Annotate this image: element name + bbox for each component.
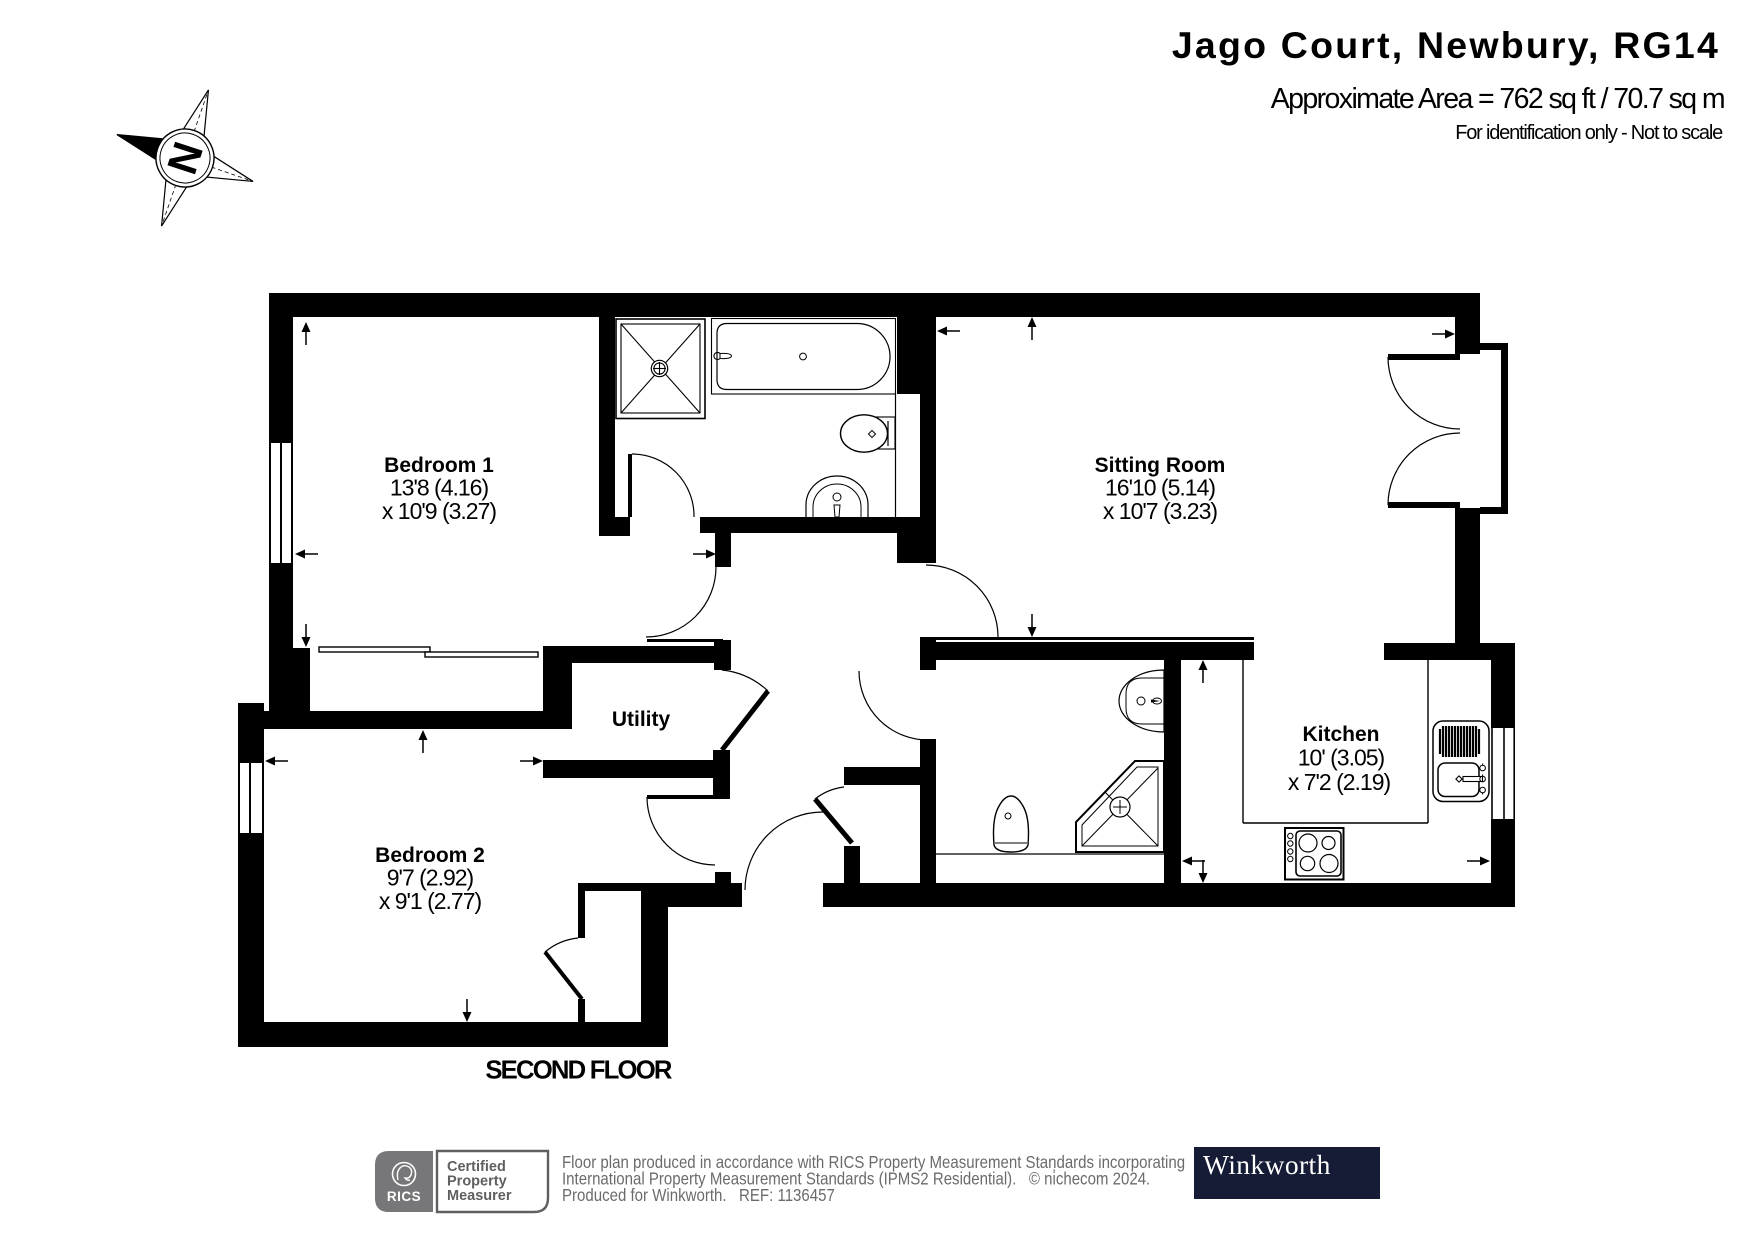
svg-text:x 9'1 (2.77): x 9'1 (2.77) [379, 888, 482, 914]
svg-text:13'8 (4.16): 13'8 (4.16) [390, 475, 489, 501]
svg-text:Winkworth: Winkworth [1203, 1149, 1331, 1180]
svg-text:9'7 (2.92): 9'7 (2.92) [387, 865, 474, 891]
svg-text:x 10'9 (3.27): x 10'9 (3.27) [382, 498, 496, 524]
svg-text:x 7'2 (2.19): x 7'2 (2.19) [1288, 769, 1391, 795]
svg-text:10' (3.05): 10' (3.05) [1298, 745, 1385, 771]
svg-text:x 10'7 (3.23): x 10'7 (3.23) [1103, 498, 1217, 524]
svg-text:16'10 (5.14): 16'10 (5.14) [1105, 475, 1215, 501]
svg-text:RICS: RICS [387, 1189, 421, 1204]
svg-text:Jago Court, Newbury, RG14: Jago Court, Newbury, RG14 [1172, 24, 1720, 66]
svg-text:For identification only - Not: For identification only - Not to scale [1455, 122, 1723, 144]
svg-text:Produced for Winkworth. REF:: Produced for Winkworth. REF: 1136457 [562, 1185, 835, 1206]
svg-text:Approximate Area = 762 sq ft /: Approximate Area = 762 sq ft / 70.7 sq m [1271, 83, 1724, 115]
svg-text:Measurer: Measurer [447, 1188, 512, 1204]
svg-text:Utility: Utility [612, 708, 671, 731]
svg-text:Kitchen: Kitchen [1302, 723, 1379, 746]
svg-text:SECOND FLOOR: SECOND FLOOR [485, 1057, 673, 1085]
